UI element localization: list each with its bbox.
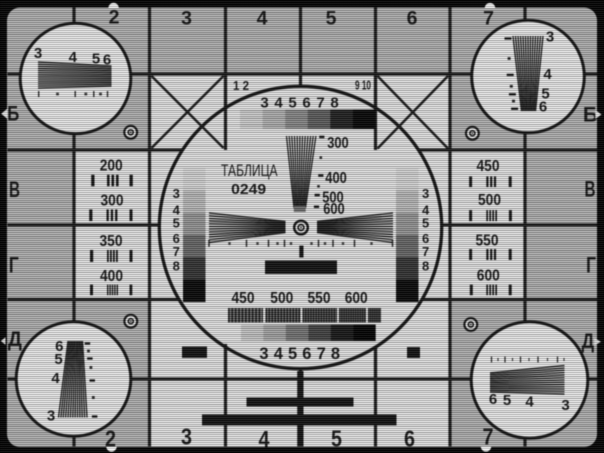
svg-text:6: 6 [103, 52, 111, 69]
svg-text:4: 4 [51, 370, 60, 387]
svg-text:3: 3 [47, 408, 55, 425]
svg-text:4: 4 [69, 49, 78, 66]
svg-text:300: 300 [327, 135, 349, 152]
svg-text:2: 2 [109, 7, 120, 29]
svg-text:9 10: 9 10 [355, 79, 371, 93]
svg-text:Д: Д [8, 328, 22, 351]
svg-text:5: 5 [173, 216, 180, 231]
svg-text:600: 600 [477, 267, 500, 284]
svg-text:Г: Г [586, 253, 596, 278]
svg-text:400: 400 [100, 268, 123, 285]
svg-text:Д: Д [582, 330, 595, 353]
svg-text:550: 550 [308, 290, 331, 307]
svg-text:8: 8 [330, 94, 338, 111]
svg-text:6: 6 [539, 99, 547, 116]
svg-text:4: 4 [274, 94, 283, 111]
svg-text:6: 6 [489, 391, 497, 408]
svg-text:4: 4 [259, 426, 270, 452]
svg-text:8: 8 [331, 345, 340, 363]
svg-text:5: 5 [331, 426, 342, 452]
svg-text:1 2: 1 2 [233, 78, 249, 93]
svg-text:550: 550 [476, 233, 499, 250]
svg-text:3: 3 [422, 186, 429, 201]
svg-text:3: 3 [561, 397, 569, 414]
svg-text:5: 5 [288, 94, 296, 111]
svg-text:500: 500 [270, 290, 293, 307]
svg-text:3: 3 [260, 94, 268, 111]
svg-text:4: 4 [543, 66, 552, 83]
svg-text:350: 350 [100, 233, 123, 250]
svg-text:7: 7 [422, 244, 429, 259]
svg-text:5: 5 [326, 8, 337, 30]
svg-text:Г: Г [9, 253, 19, 278]
svg-text:Б: Б [7, 103, 19, 126]
svg-text:4: 4 [525, 394, 534, 411]
svg-text:5: 5 [92, 51, 100, 68]
svg-text:7: 7 [483, 8, 494, 30]
svg-text:7: 7 [483, 424, 494, 450]
svg-text:7: 7 [316, 94, 324, 111]
svg-text:3: 3 [259, 345, 268, 363]
svg-text:0249: 0249 [231, 181, 266, 198]
svg-text:3: 3 [181, 8, 192, 30]
svg-text:200: 200 [100, 158, 123, 175]
svg-text:3: 3 [34, 45, 42, 62]
svg-text:3: 3 [173, 186, 180, 201]
svg-text:450: 450 [232, 290, 255, 307]
svg-text:600: 600 [345, 290, 368, 307]
svg-text:3: 3 [181, 424, 192, 450]
svg-text:5: 5 [422, 216, 429, 231]
svg-text:5: 5 [54, 351, 62, 368]
svg-text:В: В [9, 177, 20, 202]
svg-text:7: 7 [173, 244, 180, 259]
svg-text:6: 6 [302, 94, 310, 111]
svg-text:5: 5 [288, 345, 297, 363]
svg-text:ТАБЛИЦА: ТАБЛИЦА [221, 162, 278, 180]
svg-text:В: В [585, 177, 596, 202]
svg-text:500: 500 [478, 192, 501, 209]
svg-text:400: 400 [325, 170, 347, 187]
svg-text:7: 7 [317, 345, 326, 363]
svg-text:6: 6 [407, 8, 418, 30]
svg-text:6: 6 [404, 426, 415, 452]
svg-text:3: 3 [546, 29, 554, 46]
svg-text:8: 8 [422, 259, 429, 274]
svg-text:5: 5 [503, 392, 511, 409]
svg-text:6: 6 [302, 345, 311, 363]
svg-text:450: 450 [477, 158, 500, 175]
svg-text:600: 600 [323, 201, 345, 218]
svg-text:4: 4 [257, 8, 268, 30]
svg-text:8: 8 [173, 259, 180, 274]
svg-text:4: 4 [274, 345, 284, 363]
svg-text:300: 300 [101, 192, 124, 209]
